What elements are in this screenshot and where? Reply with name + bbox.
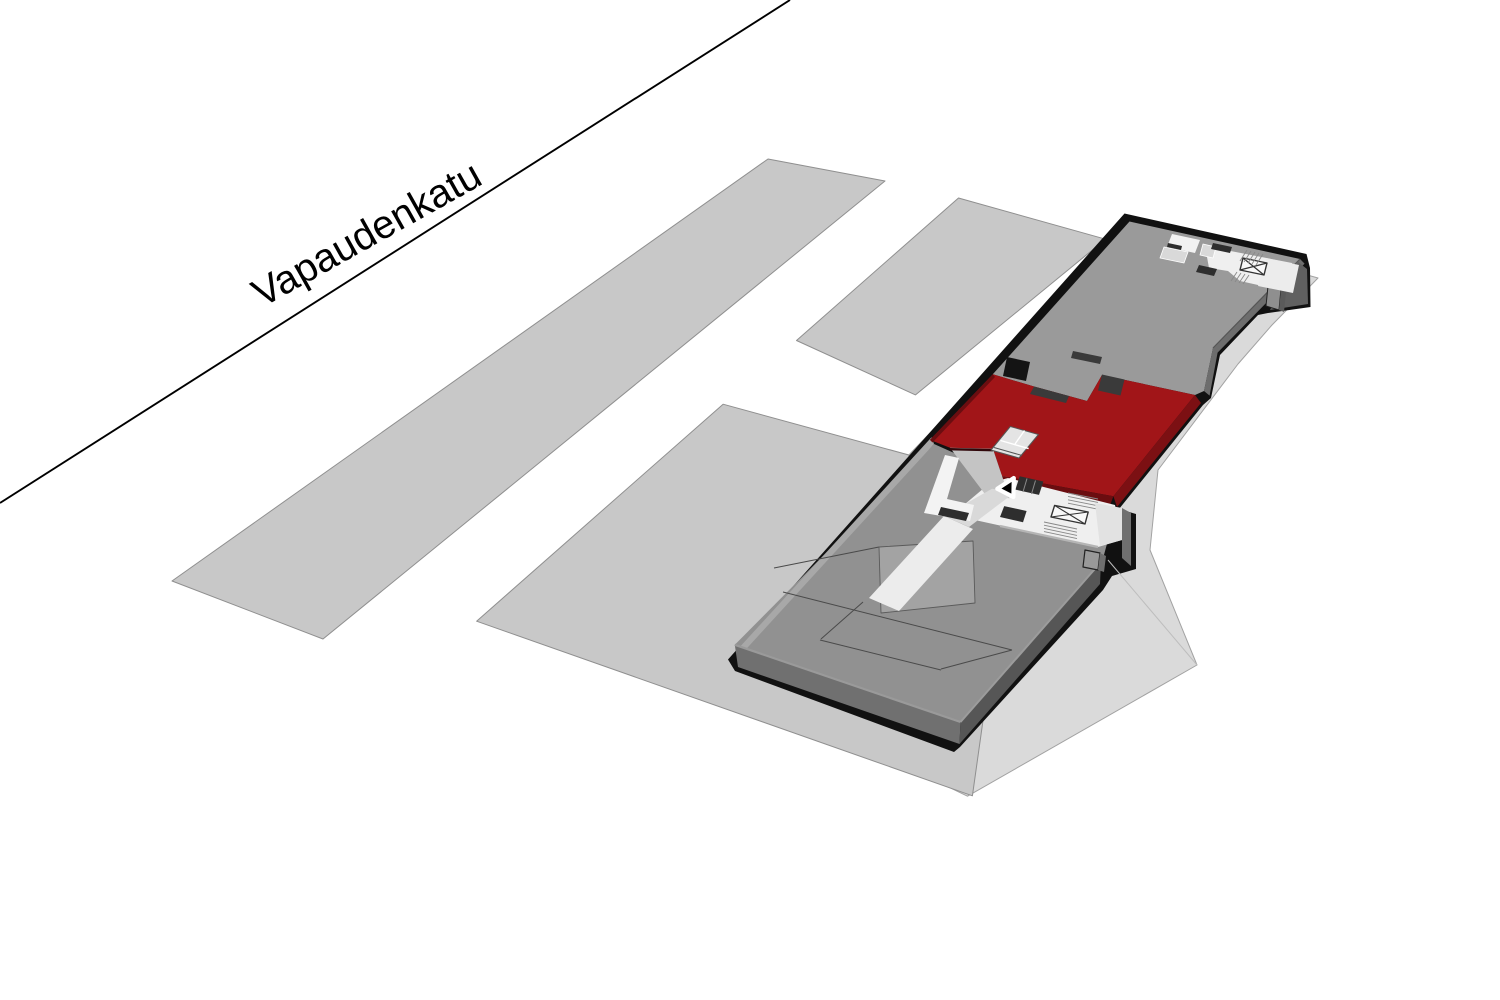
svg-text:Vapaudenkatu: Vapaudenkatu <box>245 153 489 316</box>
